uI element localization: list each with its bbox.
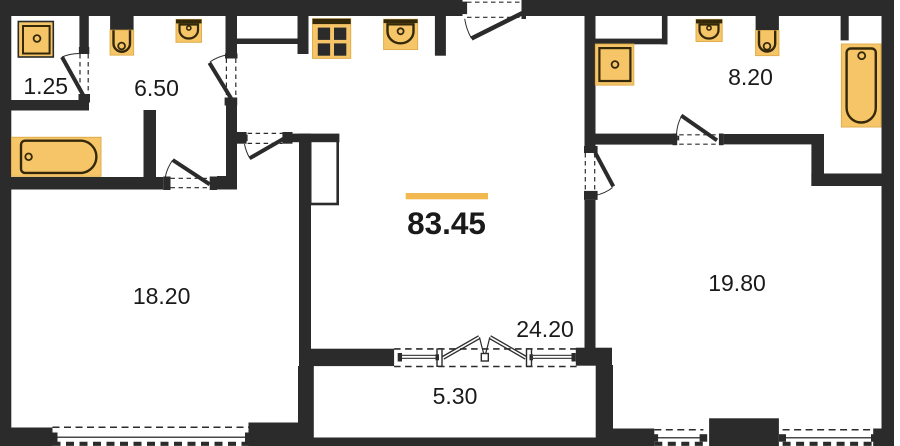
svg-text:6.50: 6.50 [134,75,179,101]
svg-text:19.80: 19.80 [708,270,766,296]
svg-text:1.25: 1.25 [23,73,68,99]
svg-text:83.45: 83.45 [407,205,486,241]
svg-text:18.20: 18.20 [133,283,191,309]
svg-text:5.30: 5.30 [433,383,478,409]
svg-text:8.20: 8.20 [728,64,773,90]
svg-text:24.20: 24.20 [516,316,574,342]
